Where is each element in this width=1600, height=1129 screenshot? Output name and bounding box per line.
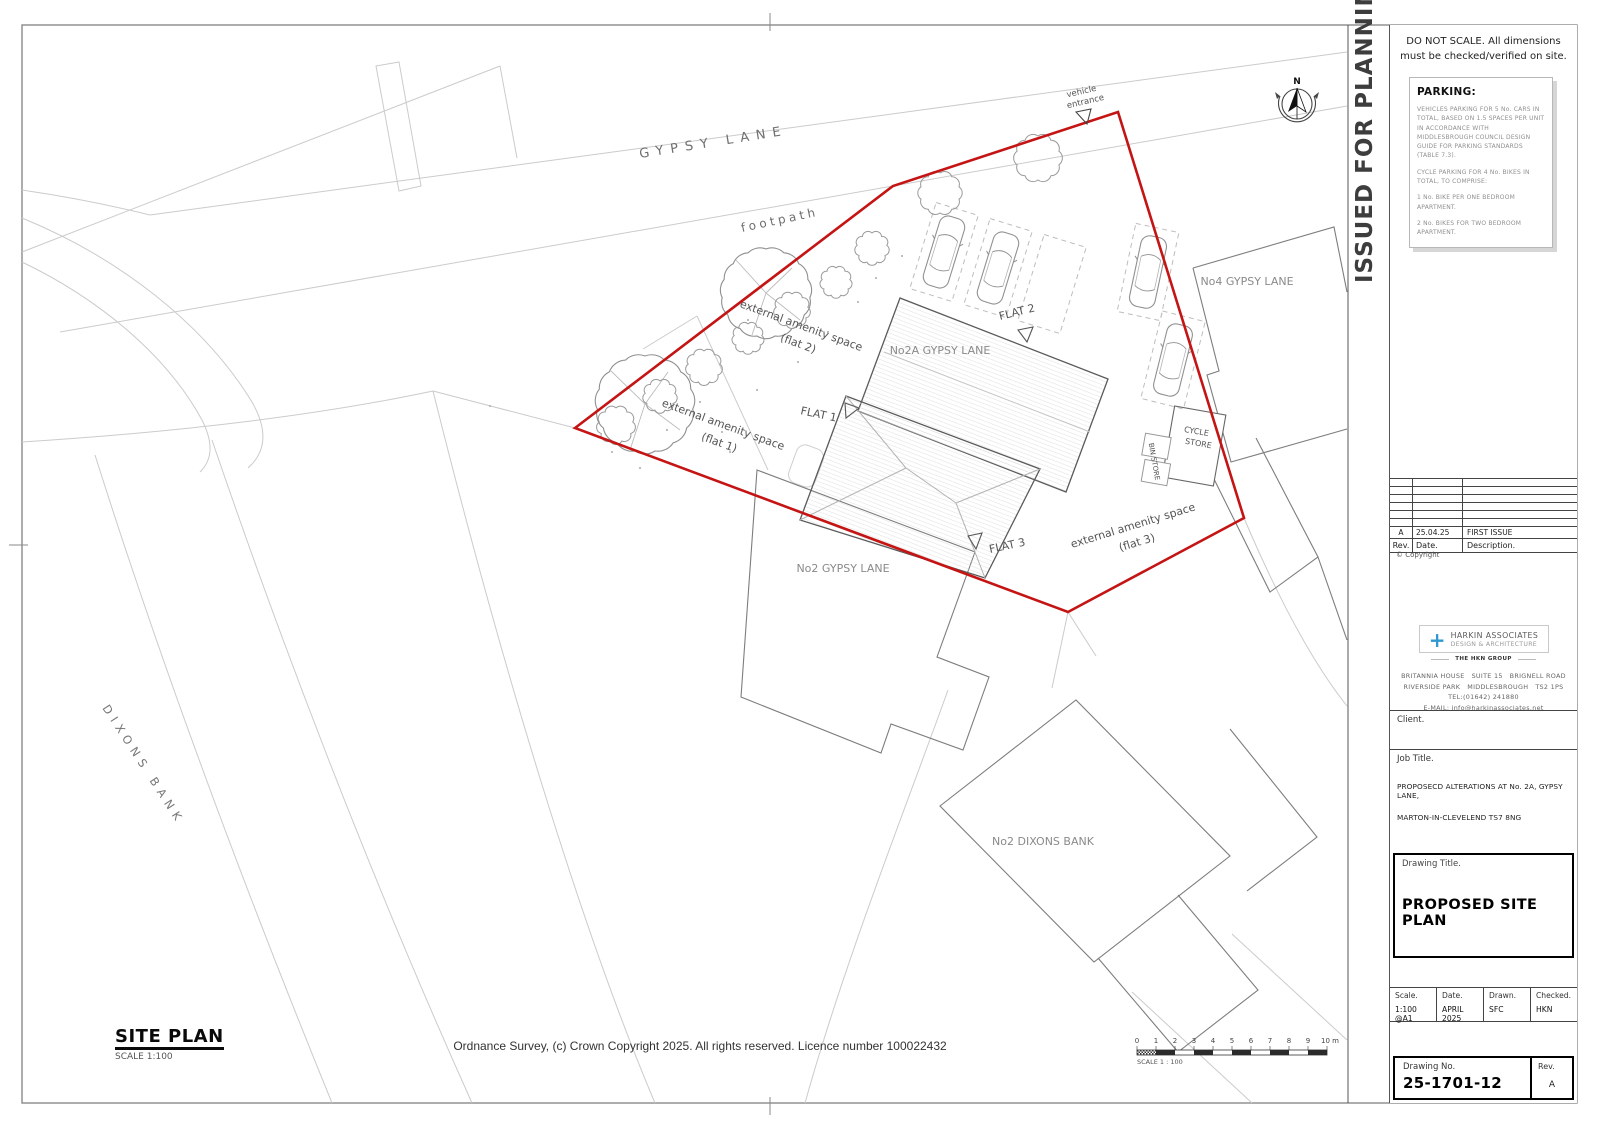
plan-labels: GYPSY LANE footpath vehicle entrance ext… bbox=[99, 84, 1293, 848]
svg-text:6: 6 bbox=[1249, 1037, 1254, 1045]
date-value: APRIL 2025 bbox=[1442, 1005, 1478, 1023]
car bbox=[1149, 321, 1197, 399]
revision-rev: A bbox=[1390, 527, 1413, 538]
drawing-title-box: Drawing Title. PROPOSED SITE PLAN bbox=[1393, 853, 1574, 958]
revision-desc: FIRST ISSUE bbox=[1463, 527, 1577, 538]
rev-label: Rev. bbox=[1538, 1062, 1566, 1071]
car bbox=[918, 213, 970, 291]
parking-note-text: 2 No. BIKES FOR TWO BEDROOM APARTMENT. bbox=[1417, 219, 1545, 238]
firm-logo: + HARKIN ASSOCIATES DESIGN & ARCHITECTUR… bbox=[1419, 625, 1549, 653]
checked-value: HKN bbox=[1536, 1005, 1572, 1014]
divider bbox=[1518, 659, 1536, 660]
car bbox=[972, 229, 1024, 307]
drawn-value: SFC bbox=[1489, 1005, 1525, 1014]
drawing-number: 25-1701-12 bbox=[1403, 1074, 1522, 1092]
flat2-arrow-icon bbox=[1018, 327, 1033, 342]
drawing-number-label: Drawing No. bbox=[1403, 1062, 1522, 1072]
divider bbox=[1431, 659, 1449, 660]
copyright-note: © Copyright bbox=[1396, 551, 1439, 559]
drawing-number-box: Drawing No. 25-1701-12 Rev. A bbox=[1393, 1056, 1574, 1100]
no2-dixons-label: No2 DIXONS BANK bbox=[992, 835, 1095, 848]
drawing-title: PROPOSED SITE PLAN bbox=[1402, 897, 1565, 929]
title-block: DO NOT SCALE. All dimensions must be che… bbox=[1389, 25, 1577, 1103]
svg-text:8: 8 bbox=[1287, 1037, 1291, 1045]
revision-row: A 25.04.25 FIRST ISSUE bbox=[1390, 527, 1577, 539]
site-plan-title: SITE PLAN bbox=[115, 1026, 224, 1050]
client-label: Client. bbox=[1397, 715, 1424, 725]
firm-group: THE HKN GROUP bbox=[1455, 656, 1512, 662]
svg-text:5: 5 bbox=[1230, 1037, 1234, 1045]
issued-for-planning-banner: ISSUED FOR PLANNING bbox=[1352, 0, 1378, 283]
job-title-label: Job Title. bbox=[1397, 754, 1570, 764]
parking-note: PARKING: VEHICLES PARKING FOR 5 No. CARS… bbox=[1409, 77, 1553, 248]
scale-label: Scale. bbox=[1395, 991, 1431, 1000]
firm-address-line: BRITANNIA HOUSE SUITE 15 BRIGNELL ROAD bbox=[1390, 671, 1577, 682]
hedge-blob bbox=[820, 266, 852, 298]
rev-value: A bbox=[1538, 1080, 1566, 1090]
parking-note-title: PARKING: bbox=[1417, 86, 1545, 98]
scale-value: 1:100 @A1 bbox=[1395, 1005, 1431, 1023]
do-not-scale-note: DO NOT SCALE. All dimensions must be che… bbox=[1396, 35, 1571, 64]
firm-address: BRITANNIA HOUSE SUITE 15 BRIGNELL ROAD R… bbox=[1390, 671, 1577, 713]
firm-tagline: DESIGN & ARCHITECTURE bbox=[1451, 641, 1539, 648]
os-copyright: Ordnance Survey, (c) Crown Copyright 202… bbox=[390, 1039, 1010, 1053]
revision-row-empty bbox=[1390, 479, 1577, 487]
hedge-blob bbox=[1014, 134, 1063, 181]
job-title-section: Job Title. PROPOSECD ALTERATIONS AT No. … bbox=[1390, 749, 1577, 853]
firm-address-line: RIVERSIDE PARK MIDDLESBROUGH TS2 1PS bbox=[1390, 682, 1577, 693]
neighbour-buildings bbox=[741, 227, 1347, 1052]
scale-date-grid: Scale. 1:100 @A1 Date. APRIL 2025 Drawn.… bbox=[1390, 987, 1577, 1022]
north-label: N bbox=[1293, 77, 1301, 87]
flat2-label: FLAT 2 bbox=[998, 301, 1037, 322]
scale-bar-label: SCALE 1 : 100 bbox=[1137, 1058, 1183, 1066]
sheet-frame bbox=[9, 13, 1577, 1115]
firm-name: HARKIN ASSOCIATES bbox=[1451, 631, 1539, 640]
scale-bar-ticks: 0 1 2 3 4 5 6 7 8 9 10 m bbox=[1135, 1037, 1339, 1045]
plus-icon: + bbox=[1429, 632, 1446, 648]
svg-text:0: 0 bbox=[1135, 1037, 1139, 1045]
hedge-blob bbox=[855, 231, 889, 265]
checked-label: Checked. bbox=[1536, 991, 1572, 1000]
svg-text:9: 9 bbox=[1306, 1037, 1310, 1045]
revision-row-empty bbox=[1390, 503, 1577, 511]
scale-bar: 0 1 2 3 4 5 6 7 8 9 10 m SCALE 1 : 100 bbox=[1135, 1037, 1339, 1066]
flat1-label: FLAT 1 bbox=[799, 404, 837, 424]
parking-note-text: CYCLE PARKING FOR 4 No. BIKES IN TOTAL, … bbox=[1417, 168, 1545, 187]
svg-text:2: 2 bbox=[1173, 1037, 1177, 1045]
client-section: Client. bbox=[1390, 710, 1577, 749]
firm-phone: TEL:(01642) 241880 bbox=[1390, 692, 1577, 703]
road-label: GYPSY LANE bbox=[638, 124, 788, 162]
svg-text:1: 1 bbox=[1154, 1037, 1158, 1045]
job-title-line: PROPOSECD ALTERATIONS AT No. 2A, GYPSY L… bbox=[1397, 782, 1570, 800]
revision-row-empty bbox=[1390, 511, 1577, 519]
revision-desc-header: Description. bbox=[1463, 539, 1577, 552]
parking-note-text: 1 No. BIKE PER ONE BEDROOM APARTMENT. bbox=[1417, 193, 1545, 212]
date-label: Date. bbox=[1442, 991, 1478, 1000]
site-plan-scale: SCALE 1:100 bbox=[115, 1052, 224, 1062]
svg-text:10 m: 10 m bbox=[1321, 1037, 1339, 1045]
footpath-label: footpath bbox=[740, 205, 820, 235]
firm-block: + HARKIN ASSOCIATES DESIGN & ARCHITECTUR… bbox=[1390, 625, 1577, 713]
svg-text:3: 3 bbox=[1192, 1037, 1196, 1045]
car bbox=[1125, 233, 1171, 310]
drawn-cell: Drawn. SFC bbox=[1484, 988, 1531, 1021]
date-cell: Date. APRIL 2025 bbox=[1437, 988, 1484, 1021]
no2-label: No2 GYPSY LANE bbox=[796, 562, 889, 575]
checked-cell: Checked. HKN bbox=[1531, 988, 1577, 1021]
parking-note-text: VEHICLES PARKING FOR 5 No. CARS IN TOTAL… bbox=[1417, 105, 1545, 161]
revision-row-empty bbox=[1390, 487, 1577, 495]
job-title-line: MARTON-IN-CLEVELEND TS7 8NG bbox=[1397, 813, 1570, 822]
revision-row-empty bbox=[1390, 519, 1577, 527]
revision-table: A 25.04.25 FIRST ISSUE Rev. Date. Descri… bbox=[1390, 478, 1577, 553]
north-arrow-icon: N bbox=[1275, 77, 1319, 122]
building-no2-dixons-bank bbox=[940, 700, 1317, 1052]
svg-text:4: 4 bbox=[1211, 1037, 1216, 1045]
drawn-label: Drawn. bbox=[1489, 991, 1525, 1000]
revision-date: 25.04.25 bbox=[1413, 527, 1463, 538]
svg-text:7: 7 bbox=[1268, 1037, 1272, 1045]
hedge-blob bbox=[732, 322, 764, 354]
revision-row-empty bbox=[1390, 495, 1577, 503]
scale-cell: Scale. 1:100 @A1 bbox=[1390, 988, 1437, 1021]
no4-label: No4 GYPSY LANE bbox=[1200, 275, 1293, 288]
firm-group-line: THE HKN GROUP bbox=[1390, 656, 1577, 662]
hedge-blob bbox=[686, 349, 723, 385]
dixons-bank-label: DIXONS BANK bbox=[99, 702, 187, 827]
no2a-label: No2A GYPSY LANE bbox=[890, 344, 991, 357]
site-plan-heading: SITE PLAN SCALE 1:100 bbox=[115, 1026, 224, 1062]
drawing-title-label: Drawing Title. bbox=[1402, 859, 1565, 869]
